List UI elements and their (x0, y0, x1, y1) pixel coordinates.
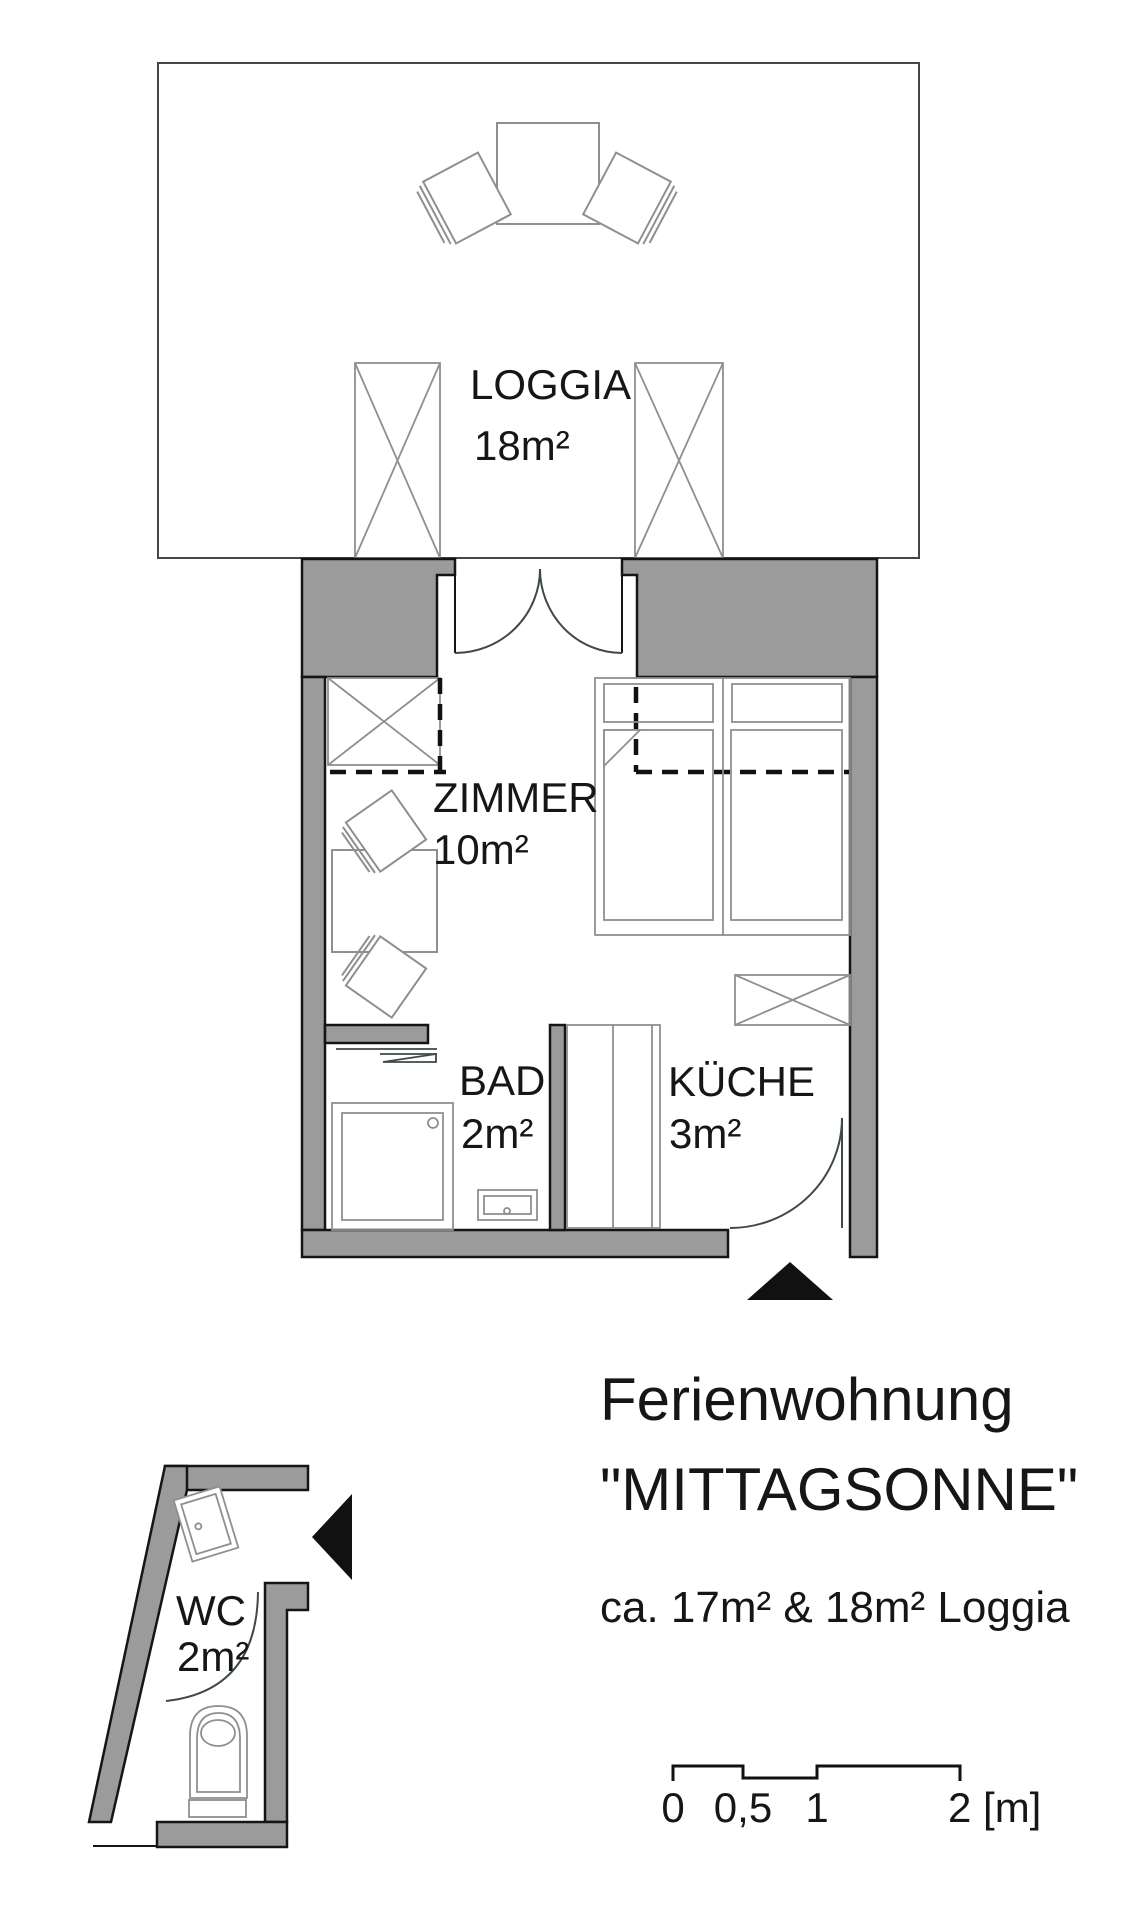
ceiling-slope-dashed-lines (330, 678, 850, 772)
wc-wall-slanted-left (89, 1466, 187, 1822)
wc-basin (174, 1486, 239, 1561)
scale-label-2m: 2 [m] (948, 1784, 1041, 1831)
wall-top-left-block (302, 559, 455, 677)
floorplan-canvas: LOGGIA 18m² (0, 0, 1140, 1925)
loggia-table (497, 123, 599, 224)
room-area-wc: 2m² (177, 1633, 249, 1680)
room-area-bad: 2m² (461, 1110, 533, 1157)
kitchen-counter (567, 1025, 660, 1228)
wall-top-right-block (622, 559, 877, 677)
scale-bar-line (673, 1766, 960, 1781)
bed-pillow-left (604, 684, 713, 722)
title-line2: "MITTAGSONNE" (600, 1456, 1078, 1523)
wc-entrance-arrow-icon (312, 1494, 352, 1580)
kueche-room: KÜCHE 3m² (567, 1025, 842, 1228)
room-area-zimmer: 10m² (433, 826, 529, 873)
entrance-door (730, 1118, 842, 1228)
wc-wall-right (265, 1583, 308, 1822)
scale-label-0: 0 (661, 1784, 684, 1831)
toilet-icon (189, 1706, 247, 1817)
room-area-kueche: 3m² (669, 1110, 741, 1157)
bad-room: BAD 2m² (332, 1049, 545, 1230)
balcony-door (455, 560, 622, 653)
room-label-kueche: KÜCHE (668, 1058, 815, 1105)
wall-left (302, 677, 325, 1230)
room-label-loggia: LOGGIA (470, 361, 631, 408)
scale-label-05: 0,5 (714, 1784, 772, 1831)
bed-pillow-right (732, 684, 842, 722)
scale-bar: 0 0,5 1 2 [m] (661, 1766, 1041, 1831)
sink (478, 1190, 537, 1220)
wall-bottom (302, 1230, 728, 1257)
wall-right (850, 677, 877, 1257)
bed-mattress-left (604, 730, 713, 920)
kueche-shelf-xbox (735, 975, 850, 1025)
balcony-door-arc-right (540, 569, 622, 653)
balcony-door-arc-left (455, 569, 540, 653)
wall-bad-kueche-divider (550, 1025, 565, 1230)
title-subtitle: ca. 17m² & 18m² Loggia (600, 1583, 1070, 1632)
radiator (336, 1049, 437, 1062)
title-block: Ferienwohnung "MITTAGSONNE" ca. 17m² & 1… (600, 1366, 1078, 1632)
wc-wall-bottom (157, 1822, 287, 1847)
entrance-arrow-icon (747, 1262, 833, 1300)
entrance-door-arc (730, 1118, 842, 1228)
scale-label-1: 1 (805, 1784, 828, 1831)
title-line1: Ferienwohnung (600, 1366, 1014, 1433)
room-label-wc: WC (176, 1587, 246, 1634)
zimmer-wardrobe (328, 678, 440, 765)
zimmer-room: ZIMMER 10m² (328, 678, 850, 1025)
bed-mattress-right (731, 730, 842, 920)
shower (332, 1103, 453, 1230)
bed (595, 678, 850, 935)
loggia-room: LOGGIA 18m² (158, 63, 919, 558)
room-label-zimmer: ZIMMER (433, 774, 599, 821)
room-label-bad: BAD (459, 1057, 545, 1104)
wall-bad-stub (325, 1025, 428, 1043)
wc-room: WC 2m² (89, 1466, 352, 1847)
room-area-loggia: 18m² (474, 422, 570, 469)
